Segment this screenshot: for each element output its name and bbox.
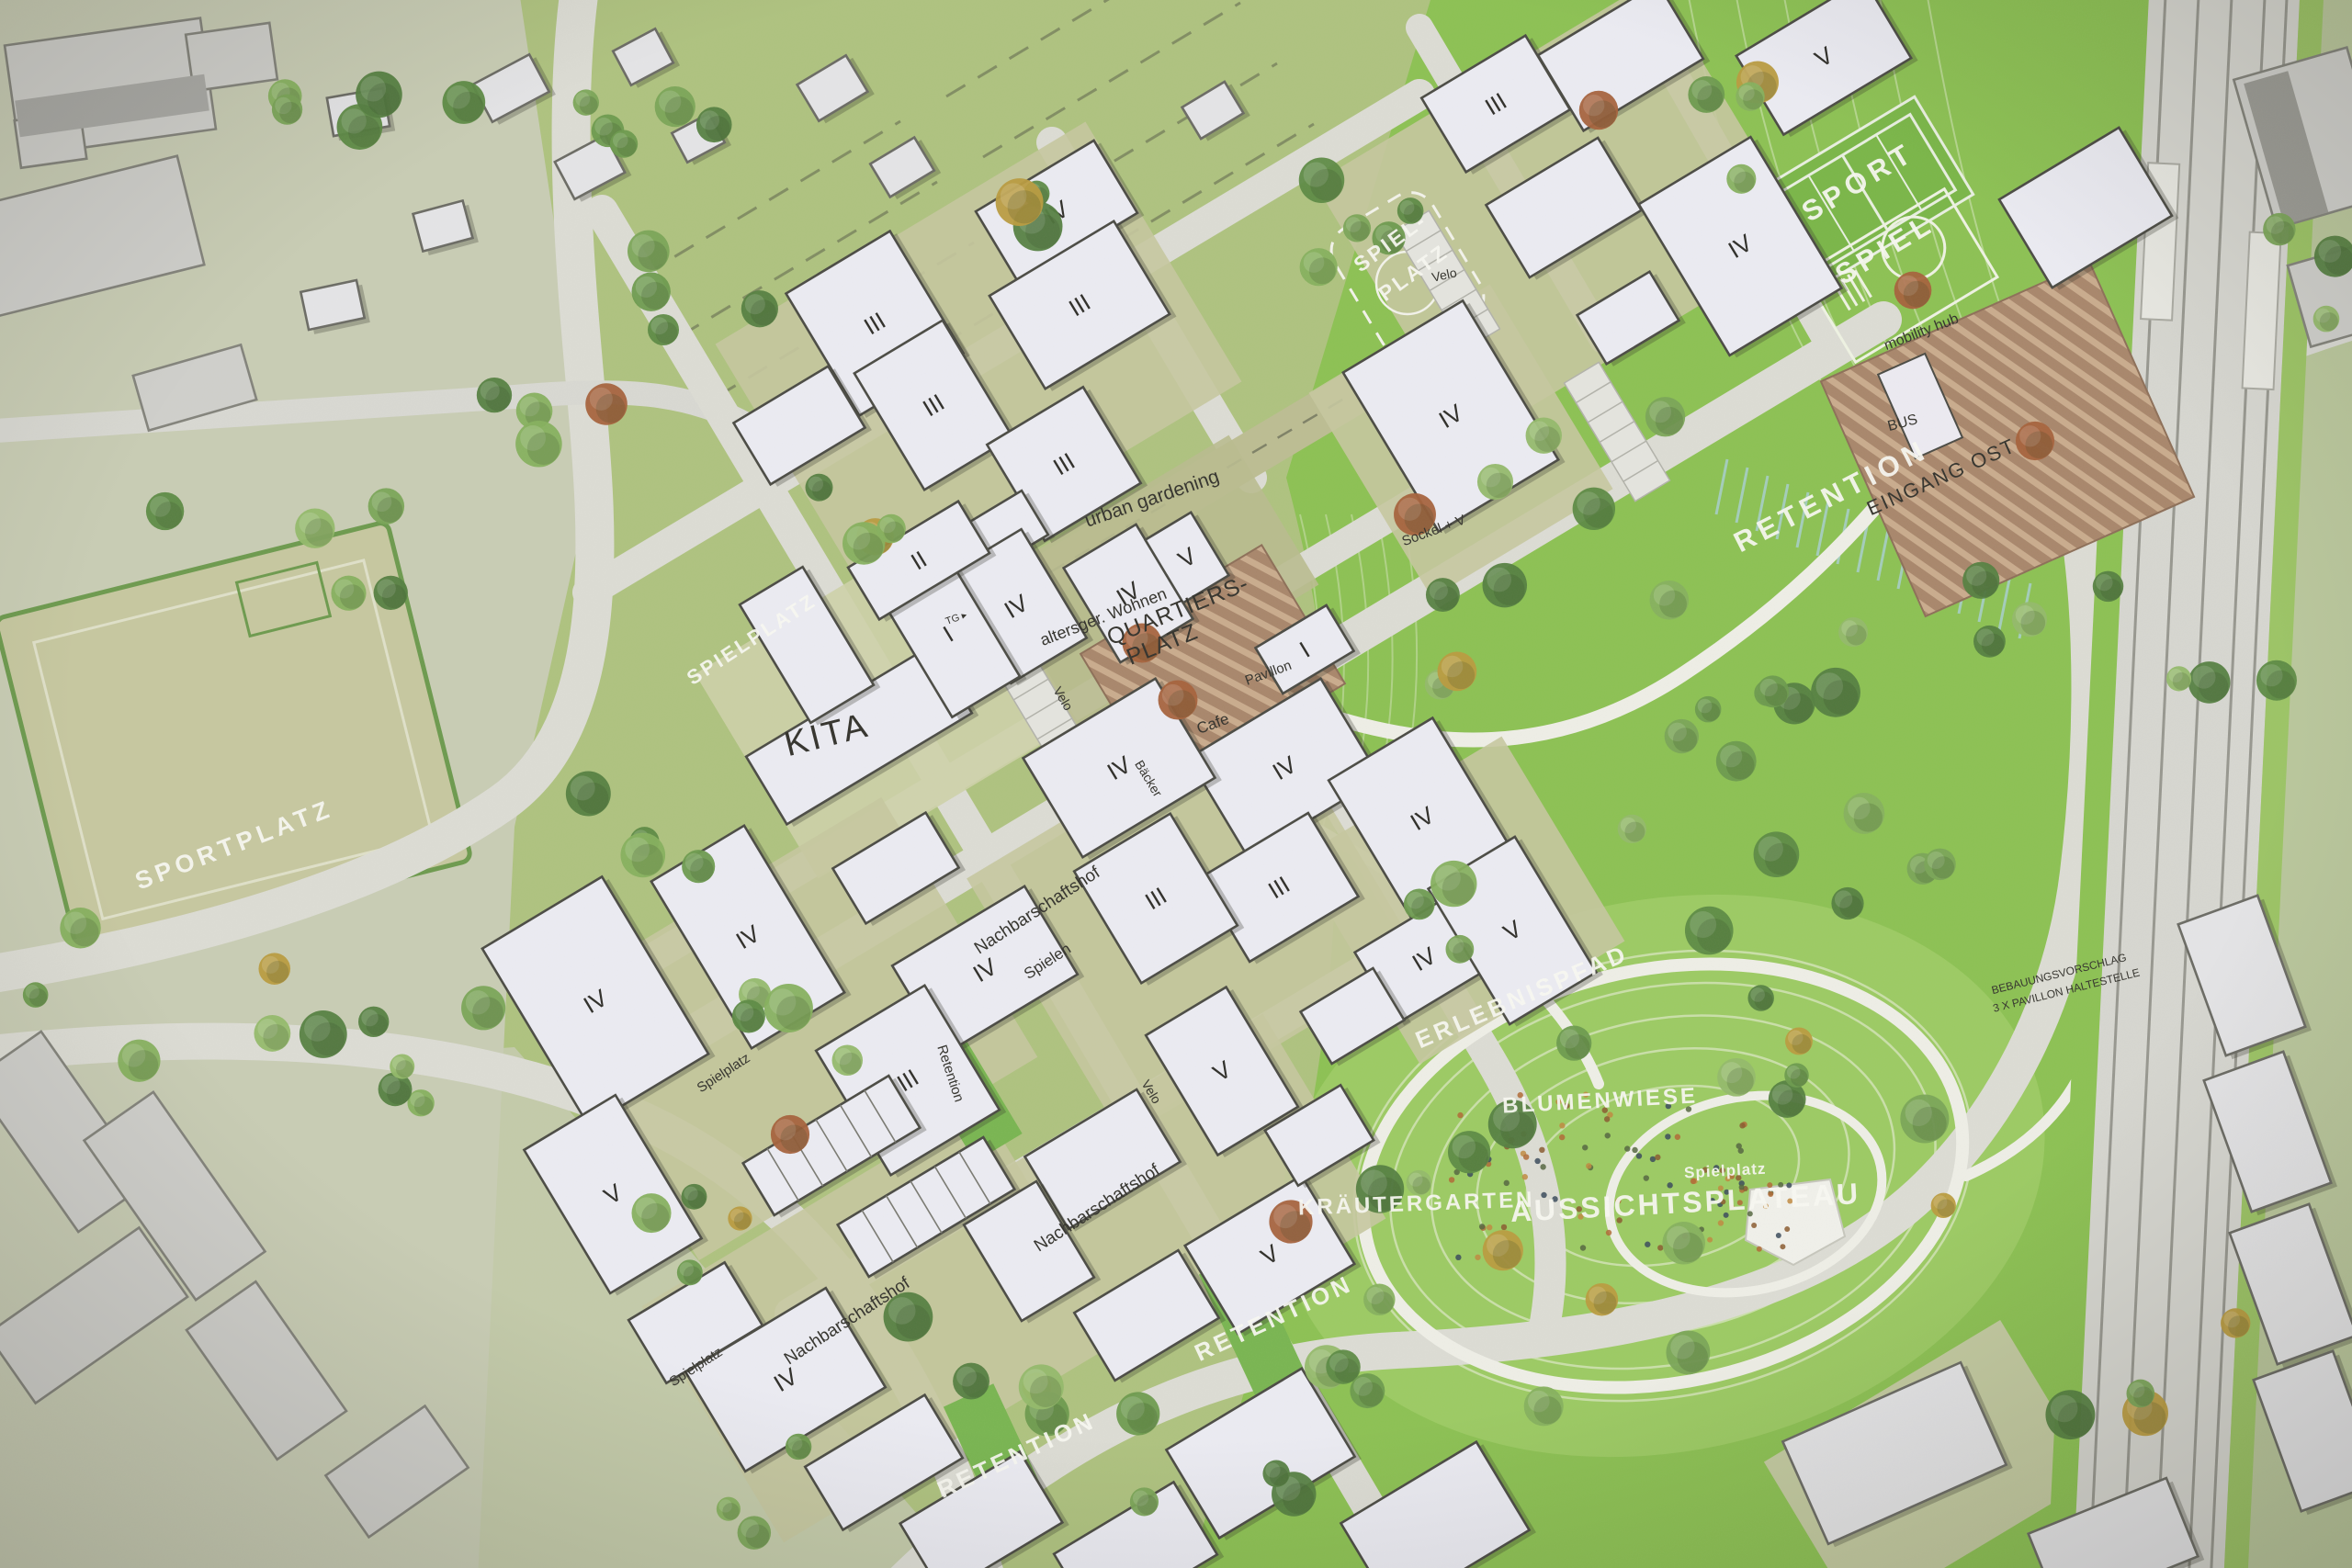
photo-effects-layer bbox=[0, 0, 2352, 1568]
masterplan-svg: IVIIIIIIIIIIIIIVVIVIIIIVIVIVIIIVIVIIVIVI… bbox=[0, 0, 2352, 1568]
paper-grain bbox=[0, 0, 2352, 1568]
masterplan-photo: IVIIIIIIIIIIIIIVVIVIIIIVIVIVIIIVIVIIVIVI… bbox=[0, 0, 2352, 1568]
